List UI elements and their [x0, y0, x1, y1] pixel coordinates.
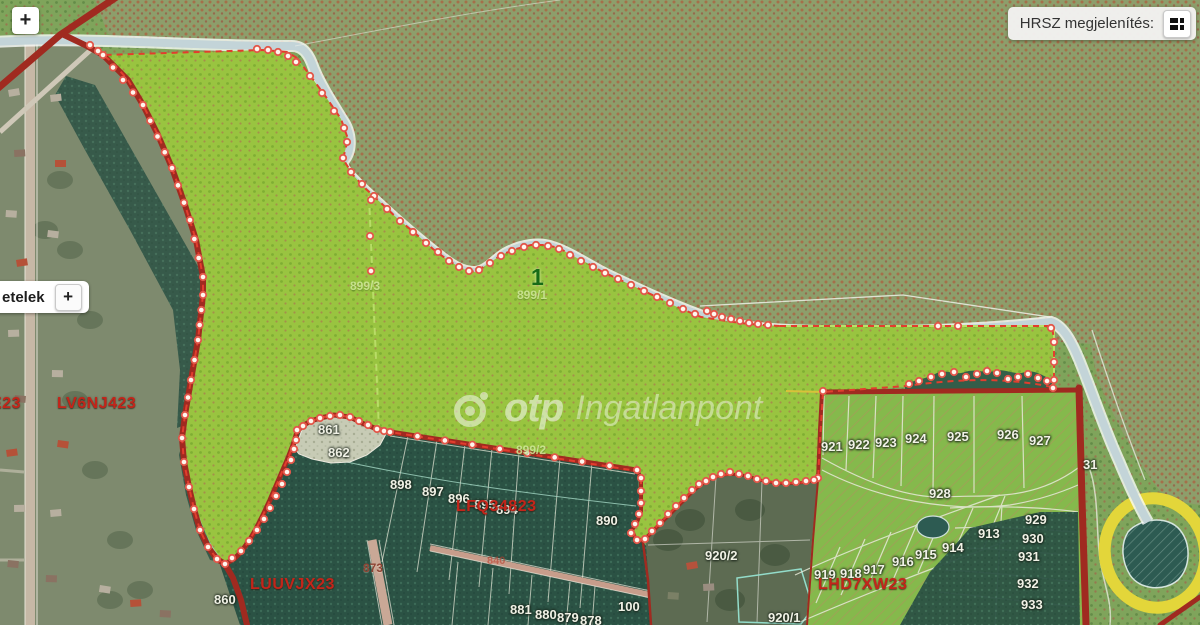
zoom-in-button[interactable]: + — [12, 7, 39, 34]
layers-add-button[interactable]: + — [55, 284, 82, 311]
layers-panel: etelek + — [0, 281, 89, 313]
hrsz-toggle-button[interactable] — [1163, 10, 1191, 38]
pond — [1123, 520, 1188, 588]
hrsz-panel-label: HRSZ megjelenítés: — [1020, 15, 1154, 32]
map-canvas[interactable] — [0, 0, 1200, 625]
map-stage: 8618628988978968958948908608818808798781… — [0, 0, 1200, 625]
grid-icon — [1170, 18, 1184, 30]
hrsz-panel: HRSZ megjelenítés: — [1008, 7, 1196, 40]
layers-panel-label: etelek — [2, 289, 45, 306]
